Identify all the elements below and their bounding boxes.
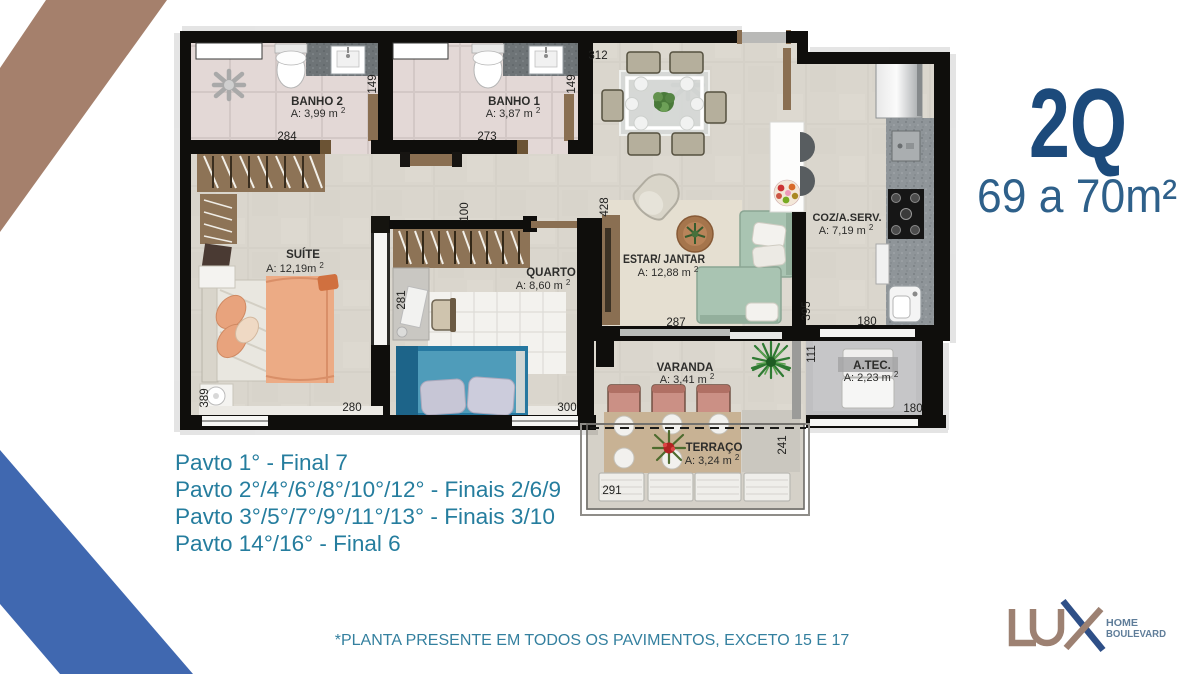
svg-text:111: 111 <box>806 345 818 362</box>
svg-text:149: 149 <box>367 74 379 93</box>
svg-text:A: 3,24 m 2: A: 3,24 m 2 <box>685 453 740 467</box>
svg-text:A: 3,41 m 2: A: 3,41 m 2 <box>660 372 715 386</box>
svg-text:Pavto 3°/5°/7°/9°/11°/13° - Fi: Pavto 3°/5°/7°/9°/11°/13° - Finais 3/10 <box>175 504 555 529</box>
svg-text:273: 273 <box>477 131 496 143</box>
svg-text:SUÍTE: SUÍTE <box>286 248 320 261</box>
svg-text:BOULEVARD: BOULEVARD <box>1106 628 1166 640</box>
svg-text:A: 8,60 m 2: A: 8,60 m 2 <box>516 278 571 292</box>
svg-text:Pavto 14°/16° - Final 6: Pavto 14°/16° - Final 6 <box>175 531 401 556</box>
svg-text:A: 7,19 m 2: A: 7,19 m 2 <box>819 223 874 237</box>
svg-text:280: 280 <box>342 402 361 414</box>
svg-text:300: 300 <box>557 402 576 414</box>
svg-text:287: 287 <box>666 317 685 329</box>
svg-text:69 a 70m²: 69 a 70m² <box>977 169 1177 222</box>
svg-text:428: 428 <box>599 197 611 216</box>
svg-text:284: 284 <box>277 131 297 143</box>
svg-text:241: 241 <box>777 435 789 454</box>
svg-text:A: 12,88 m 2: A: 12,88 m 2 <box>638 265 699 279</box>
svg-text:395: 395 <box>801 301 813 320</box>
svg-text:BANHO 1: BANHO 1 <box>488 96 540 108</box>
svg-text:A: 3,87 m 2: A: 3,87 m 2 <box>486 106 541 120</box>
svg-text:291: 291 <box>602 485 621 497</box>
svg-text:312: 312 <box>588 50 607 62</box>
svg-text:A: 3,99 m 2: A: 3,99 m 2 <box>291 106 346 120</box>
svg-text:180: 180 <box>857 316 876 328</box>
svg-text:*PLANTA PRESENTE EM TODOS OS P: *PLANTA PRESENTE EM TODOS OS PAVIMENTOS,… <box>335 632 850 649</box>
svg-text:Pavto 2°/4°/6°/8°/10°/12° - Fi: Pavto 2°/4°/6°/8°/10°/12° - Finais 2/6/9 <box>175 477 561 502</box>
svg-text:149: 149 <box>566 74 578 93</box>
svg-text:180: 180 <box>903 403 922 415</box>
svg-text:A: 12,19m 2: A: 12,19m 2 <box>266 261 324 275</box>
svg-text:VARANDA: VARANDA <box>657 362 714 374</box>
svg-text:A.TEC.: A.TEC. <box>853 360 891 372</box>
svg-text:389: 389 <box>199 388 211 407</box>
svg-text:281: 281 <box>396 290 408 309</box>
svg-text:BANHO 2: BANHO 2 <box>291 96 343 108</box>
svg-text:Pavto 1° - Final 7: Pavto 1° - Final 7 <box>175 450 348 475</box>
svg-text:A: 2,23 m 2: A: 2,23 m 2 <box>844 370 899 384</box>
svg-text:100: 100 <box>459 202 471 221</box>
svg-text:2Q: 2Q <box>1029 68 1127 178</box>
